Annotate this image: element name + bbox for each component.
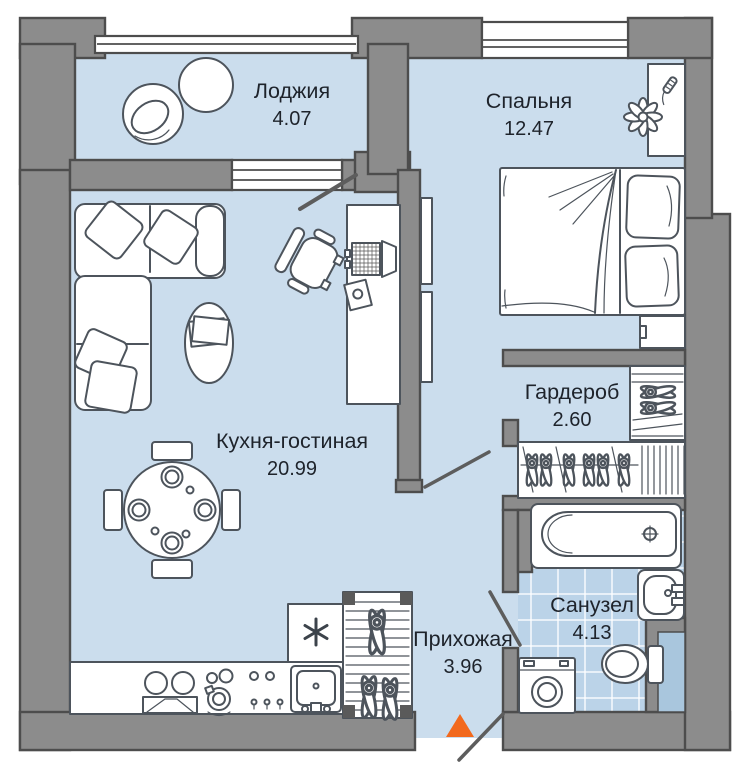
- label-wardrobe: Гардероб: [525, 380, 620, 404]
- nightstand: [640, 316, 685, 348]
- wall-bath-west-upper: [503, 510, 518, 592]
- label-hallway: Прихожая: [413, 627, 513, 651]
- label-kitchen-living: Кухня-гостиная: [216, 429, 368, 453]
- plate: [195, 500, 216, 521]
- dining-chair: [222, 490, 240, 530]
- bathroom-sink: [638, 570, 684, 620]
- cup: [187, 487, 194, 494]
- area-bathroom: 4.13: [573, 622, 612, 644]
- wall-bath-west-lower: [503, 648, 518, 712]
- dining-chair: [152, 442, 192, 460]
- wall-loggia-bottom: [70, 160, 232, 190]
- hallway-closet: [343, 592, 412, 721]
- bed: [500, 168, 685, 315]
- sofa-pillow: [84, 360, 137, 413]
- bathtub: [531, 504, 681, 568]
- label-bathroom: Санузел: [550, 593, 634, 617]
- floor-plan: Лоджия 4.07 Спальня 12.47 Кухня-гостиная…: [0, 0, 750, 768]
- mouse-pad: [344, 280, 372, 311]
- wall-top-right-pillar: [628, 18, 712, 58]
- wardrobe-shelf: [630, 366, 685, 440]
- fridge: [288, 604, 343, 662]
- plate: [162, 533, 183, 554]
- bed-pillow: [625, 245, 679, 307]
- plant-icon: [624, 98, 662, 136]
- kitchen-sink: [291, 666, 341, 712]
- wall-tub-stub: [518, 510, 532, 572]
- coffee-table: [185, 303, 233, 383]
- magazine: [192, 316, 229, 345]
- plate: [129, 500, 150, 521]
- area-wardrobe: 2.60: [553, 409, 592, 431]
- toilet: [602, 645, 663, 683]
- wall-living-divider: [398, 170, 420, 488]
- label-bedroom: Спальня: [486, 89, 572, 113]
- wall-left: [20, 170, 70, 750]
- plate: [162, 467, 183, 488]
- wall-loggia-left: [20, 44, 75, 184]
- area-bedroom: 12.47: [504, 118, 554, 140]
- wall-bedroom-left: [368, 44, 408, 174]
- wardrobe-rack: [518, 442, 685, 498]
- cup: [152, 528, 159, 535]
- wall-bedroom-south: [503, 350, 685, 366]
- area-loggia: 4.07: [273, 108, 312, 130]
- loggia-table: [179, 58, 233, 112]
- loggia-chair: [123, 84, 183, 144]
- dining-chair: [104, 490, 122, 530]
- wall-divider-cap: [396, 480, 422, 492]
- area-kitchen-living: 20.99: [267, 458, 317, 480]
- label-loggia: Лоджия: [254, 79, 330, 103]
- loggia-living-window: [232, 160, 342, 190]
- wall-right-lower: [685, 214, 730, 750]
- bedroom-window: [482, 22, 628, 58]
- cup: [183, 531, 190, 538]
- laptop: [345, 241, 396, 277]
- area-hallway: 3.96: [444, 656, 483, 678]
- wall-wardrobe-west-stub: [503, 420, 518, 446]
- loggia-window: [95, 36, 358, 53]
- washing-machine: [519, 658, 575, 713]
- dining-chair: [152, 560, 192, 578]
